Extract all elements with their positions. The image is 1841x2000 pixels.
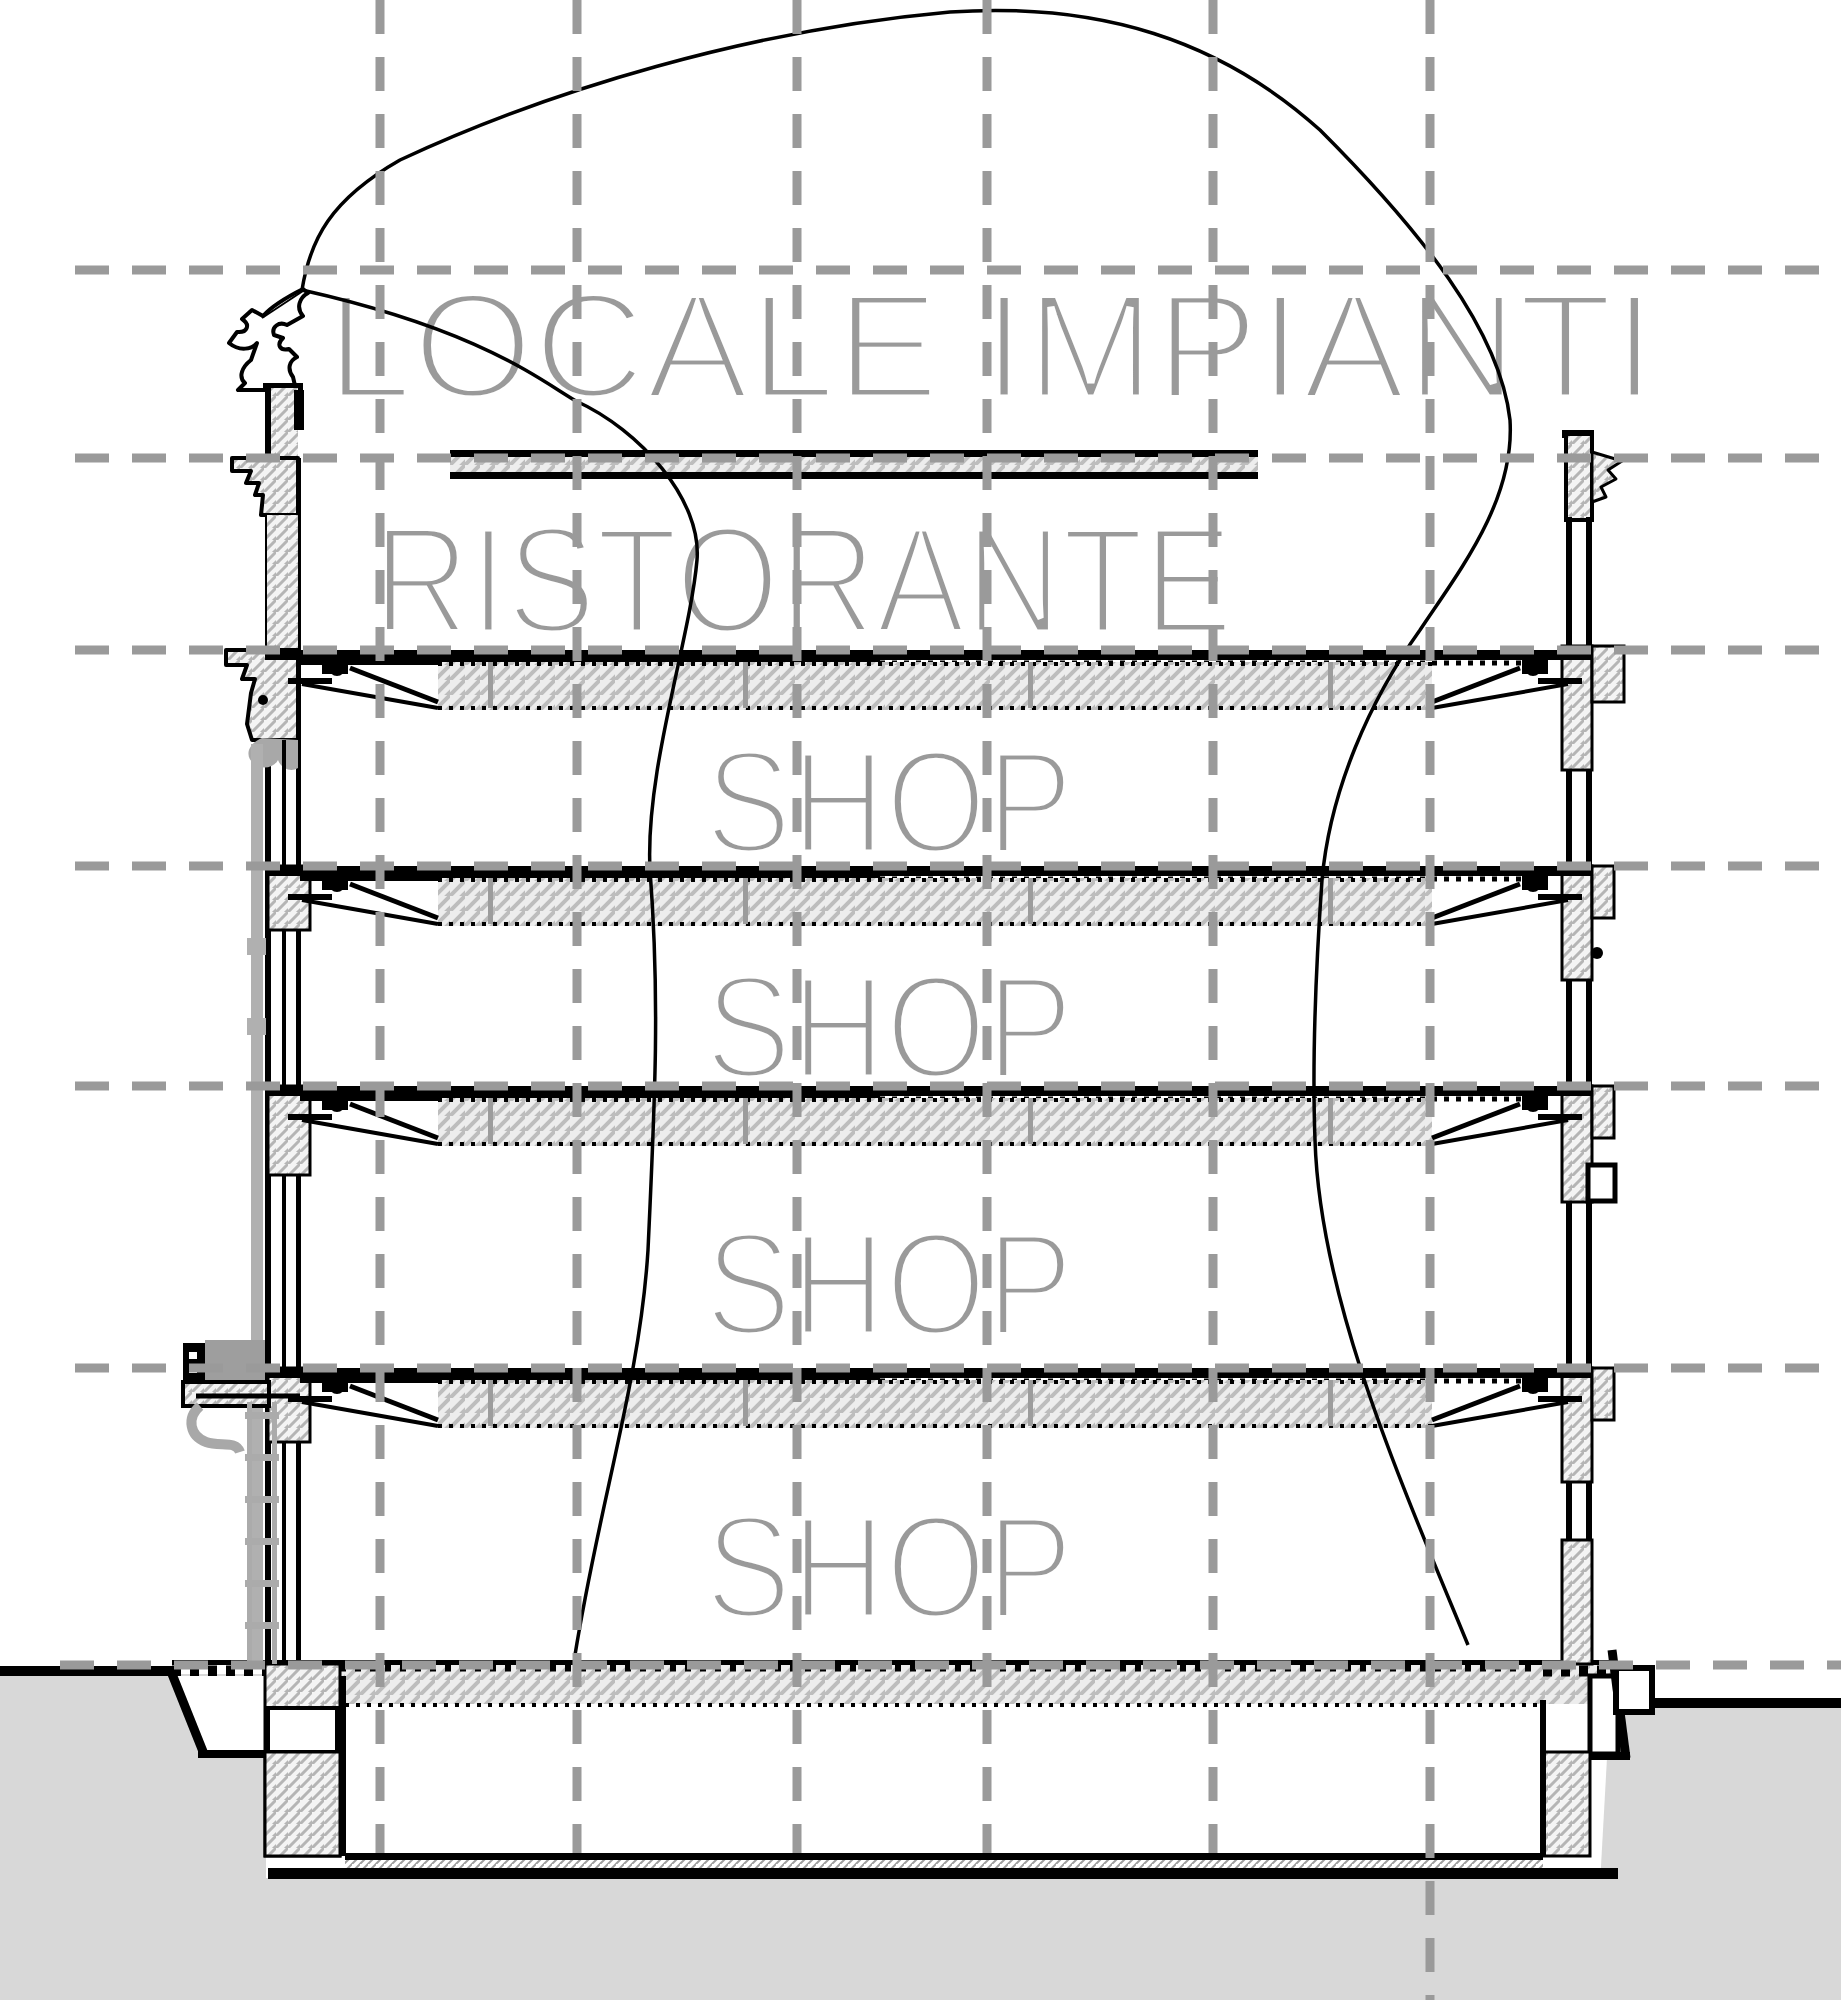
ground-bottom	[0, 1878, 1841, 2000]
ground-right	[1650, 1702, 1841, 1884]
architectural-section-canvas: LOCALE IMPIANTI RISTORANTE SHOP SHOP SHO…	[0, 0, 1841, 2000]
volute-scroll	[191, 1406, 240, 1452]
label-shop-1: SHOP	[705, 720, 1073, 884]
slab-level-4	[265, 1368, 1592, 1428]
left-wall	[183, 289, 310, 1665]
label-shop-4: SHOP	[705, 1485, 1073, 1649]
sidewalk-right-line	[1652, 1698, 1841, 1708]
section-drawing: LOCALE IMPIANTI RISTORANTE SHOP SHOP SHO…	[0, 0, 1841, 2000]
label-shop-3: SHOP	[705, 1202, 1073, 1366]
roof-beam	[450, 450, 1258, 479]
downpipe	[251, 744, 263, 1664]
statue-ornament	[229, 289, 308, 390]
cornice-lower	[226, 650, 298, 740]
right-wall	[1562, 430, 1624, 1665]
basement-floor-slab	[268, 1853, 1618, 1879]
cornice-upper	[232, 458, 298, 515]
wall-box	[1588, 1165, 1615, 1201]
label-restaurant: RISTORANTE	[373, 494, 1233, 665]
